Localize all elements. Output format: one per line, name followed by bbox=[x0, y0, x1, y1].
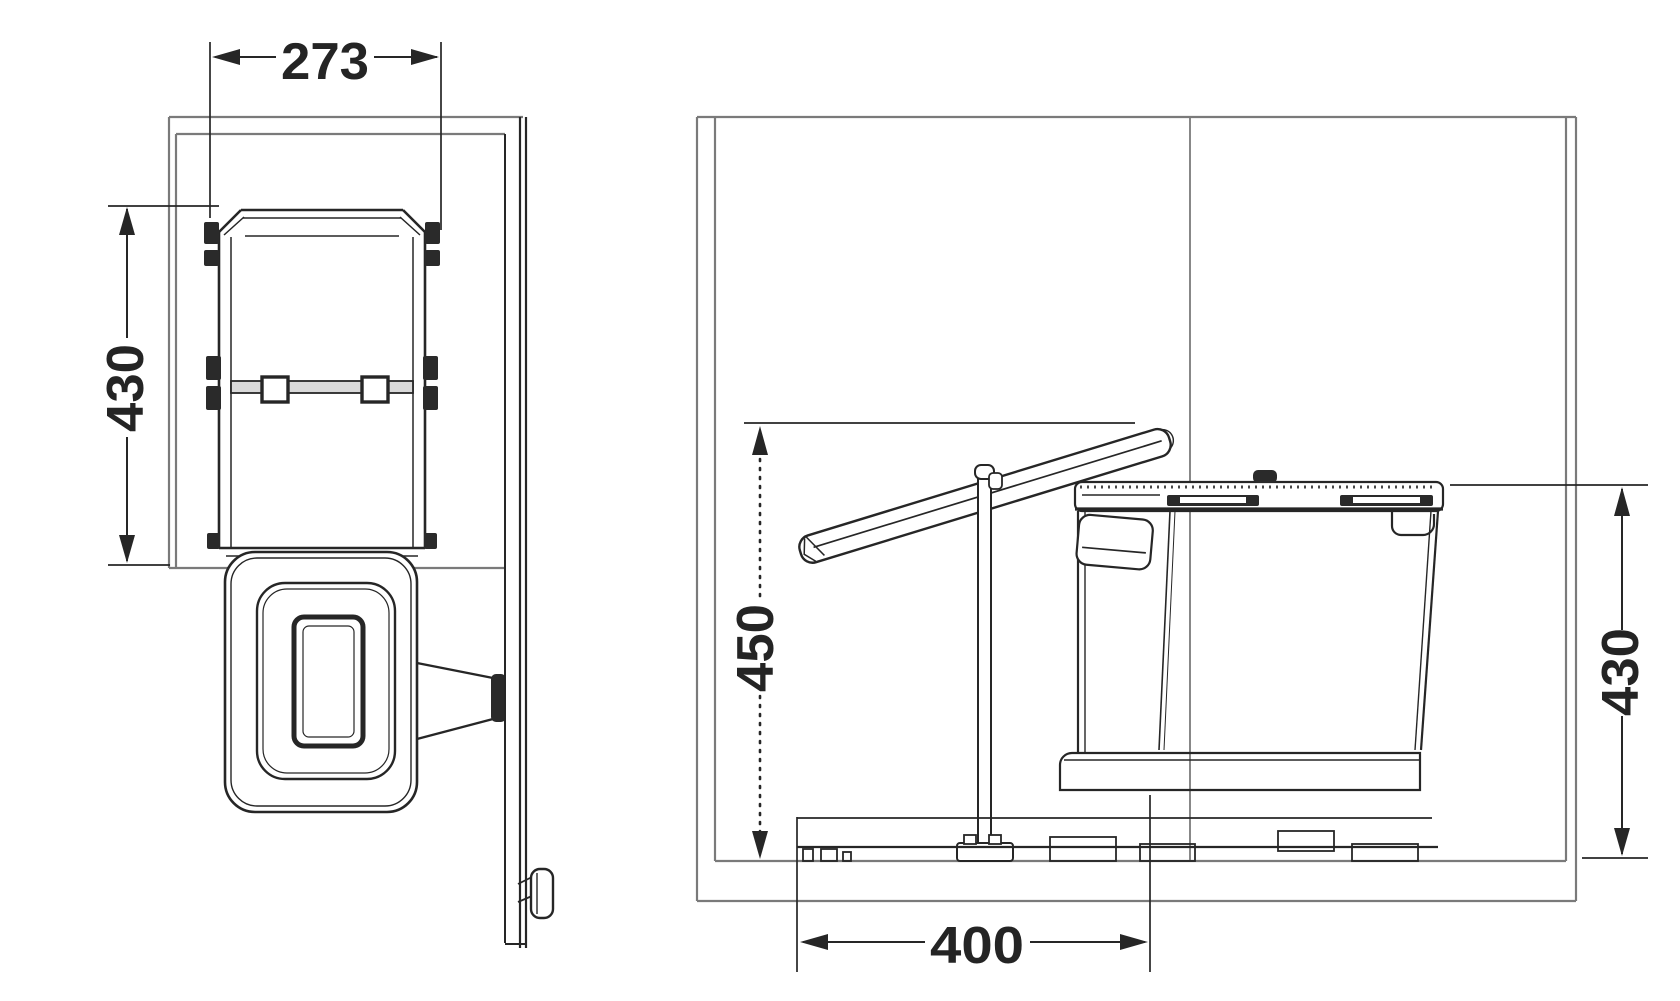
technical-drawing-canvas: 273 430 bbox=[0, 0, 1680, 1001]
handle-clip-right bbox=[362, 377, 388, 402]
lid-handle-top bbox=[417, 663, 493, 678]
bucket-handle-side bbox=[1076, 514, 1154, 570]
bin-lid-top bbox=[225, 552, 506, 812]
dim-label-400: 400 bbox=[930, 917, 1024, 975]
dim-open-lid-height: 450 bbox=[727, 423, 1135, 859]
waste-bin-drawing: 273 430 bbox=[0, 0, 1680, 1001]
arrow-down-icon bbox=[752, 831, 768, 859]
dim-plan-width: 273 bbox=[210, 33, 441, 230]
arrow-down-icon bbox=[1614, 828, 1630, 856]
base-plate bbox=[1060, 753, 1420, 790]
rim-latch bbox=[1253, 470, 1277, 483]
arrow-left-icon bbox=[800, 934, 828, 950]
dim-bin-height: 430 bbox=[1450, 485, 1650, 858]
lid-handle-grip bbox=[491, 674, 506, 722]
dim-pullout-depth: 400 bbox=[797, 795, 1150, 975]
door-knob bbox=[531, 869, 553, 918]
frame-hook bbox=[1392, 511, 1434, 535]
lid-rod bbox=[957, 465, 1013, 861]
rod-foot bbox=[957, 843, 1013, 861]
dim-label-273: 273 bbox=[281, 33, 369, 91]
cabinet-door-open bbox=[505, 117, 553, 948]
dim-label-430-plan: 430 bbox=[97, 344, 155, 432]
arrow-right-icon bbox=[1120, 934, 1148, 950]
arrow-up-icon bbox=[752, 426, 768, 455]
cabinet-outline-plan bbox=[169, 117, 523, 568]
side-view: 450 430 400 bbox=[697, 117, 1650, 975]
arrow-left-icon bbox=[212, 49, 240, 65]
dim-label-450: 450 bbox=[727, 604, 785, 692]
plan-view: 273 430 bbox=[97, 33, 553, 948]
dim-plan-depth: 430 bbox=[97, 206, 219, 565]
arrow-up-icon bbox=[119, 207, 135, 235]
pullout-rail bbox=[797, 818, 1438, 861]
arrow-up-icon bbox=[1614, 487, 1630, 516]
waste-bin-top bbox=[204, 210, 440, 556]
dim-label-430-side: 430 bbox=[1592, 628, 1650, 716]
waste-bin-side bbox=[1050, 470, 1443, 861]
handle-clip-left bbox=[262, 377, 288, 402]
arrow-down-icon bbox=[119, 535, 135, 563]
arrow-right-icon bbox=[411, 49, 439, 65]
